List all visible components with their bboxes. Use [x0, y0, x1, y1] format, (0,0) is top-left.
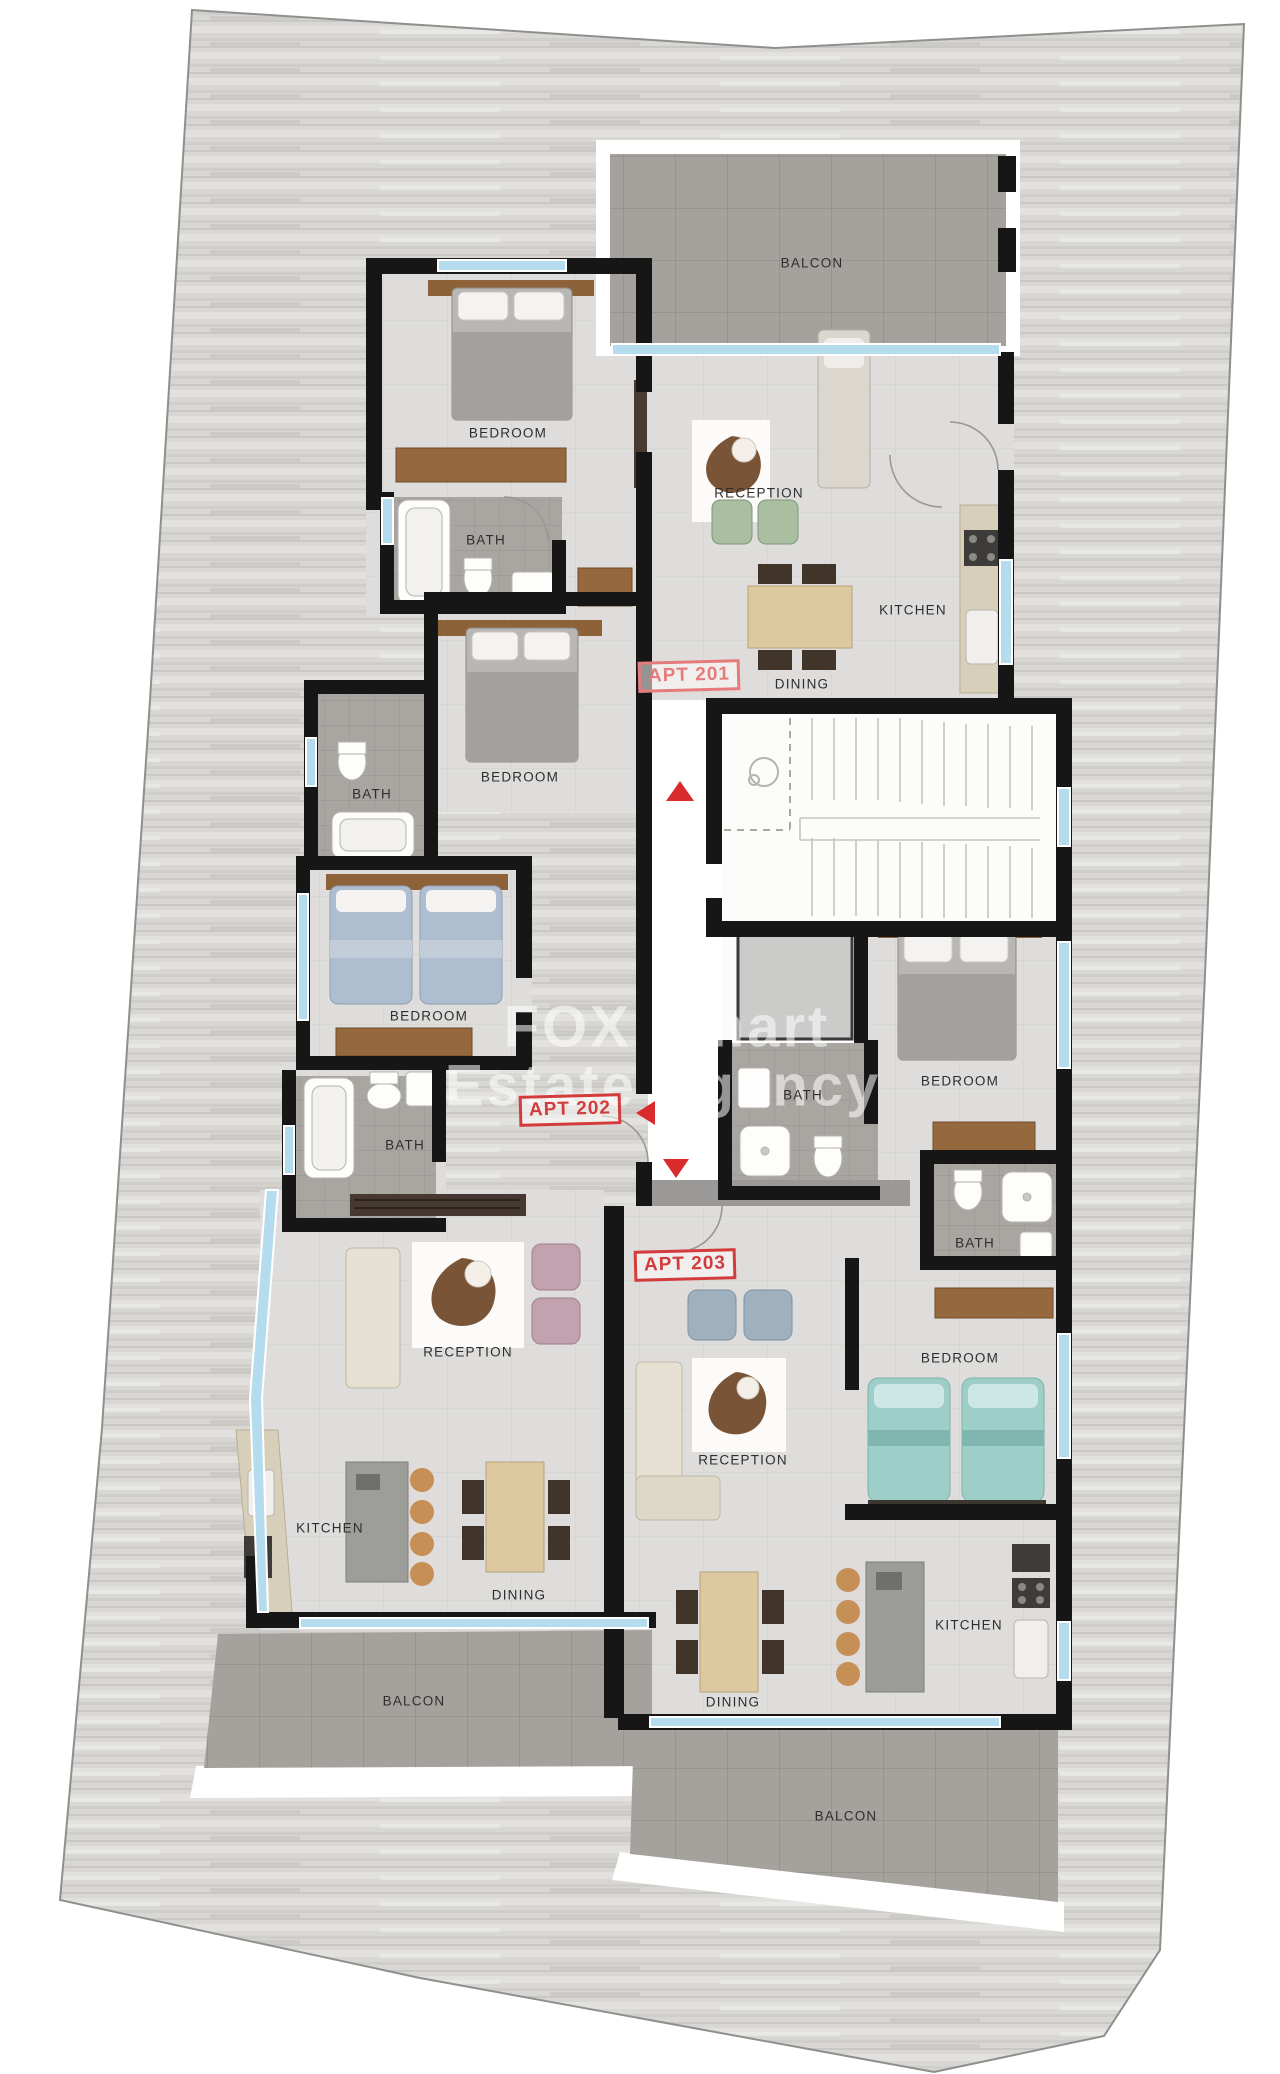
label-apt201-kitchen: KITCHEN [879, 603, 947, 618]
label-apt202-bedroom1: BEDROOM [481, 770, 559, 785]
entrance-arrow-apt203-icon [663, 1159, 689, 1178]
label-apt203-kitchen: KITCHEN [935, 1618, 1003, 1633]
label-apt202-reception: RECEPTION [423, 1345, 513, 1360]
label-apt203-bath2: BATH [955, 1236, 995, 1251]
label-apt203-dining: DINING [706, 1695, 760, 1710]
label-apt201-balcon: BALCON [781, 256, 844, 271]
label-apt202-bath2: BATH [385, 1138, 425, 1153]
wardrobe-apt201 [396, 448, 566, 482]
stairwell [722, 714, 1056, 921]
label-apt203-bedroom1: BEDROOM [921, 1074, 999, 1089]
balcony-apt202 [190, 1630, 660, 1798]
stamp-apt202: APT 202 [519, 1093, 622, 1127]
entrance-arrow-apt201-icon [666, 781, 694, 801]
stamp-apt203: APT 203 [634, 1248, 737, 1282]
label-apt202-balcon: BALCON [383, 1694, 446, 1709]
floor-plan-canvas: FOX Smart Estate Agency BALCON BEDROOM B… [0, 0, 1280, 2074]
label-apt201-reception: RECEPTION [714, 486, 804, 501]
elevator [738, 935, 852, 1039]
label-apt203-reception: RECEPTION [698, 1453, 788, 1468]
floor-plan-drawing [0, 0, 1280, 2074]
stamp-apt201: APT 201 [638, 659, 741, 693]
label-apt202-kitchen: KITCHEN [296, 1521, 364, 1536]
label-apt203-bedroom2: BEDROOM [921, 1351, 999, 1366]
label-apt203-bath1: BATH [783, 1088, 823, 1103]
balcony-apt201 [596, 140, 1020, 356]
label-apt202-bath1: BATH [352, 787, 392, 802]
label-apt201-dining: DINING [775, 677, 829, 692]
entrance-arrow-apt202-icon [636, 1101, 655, 1125]
label-apt201-bedroom: BEDROOM [469, 426, 547, 441]
label-apt202-dining: DINING [492, 1588, 546, 1603]
label-apt201-bath: BATH [466, 533, 506, 548]
kitchen-apt201 [960, 505, 1004, 693]
bed-apt201 [428, 280, 594, 420]
label-apt203-balcon: BALCON [815, 1809, 878, 1824]
label-apt202-bedroom2: BEDROOM [390, 1009, 468, 1024]
